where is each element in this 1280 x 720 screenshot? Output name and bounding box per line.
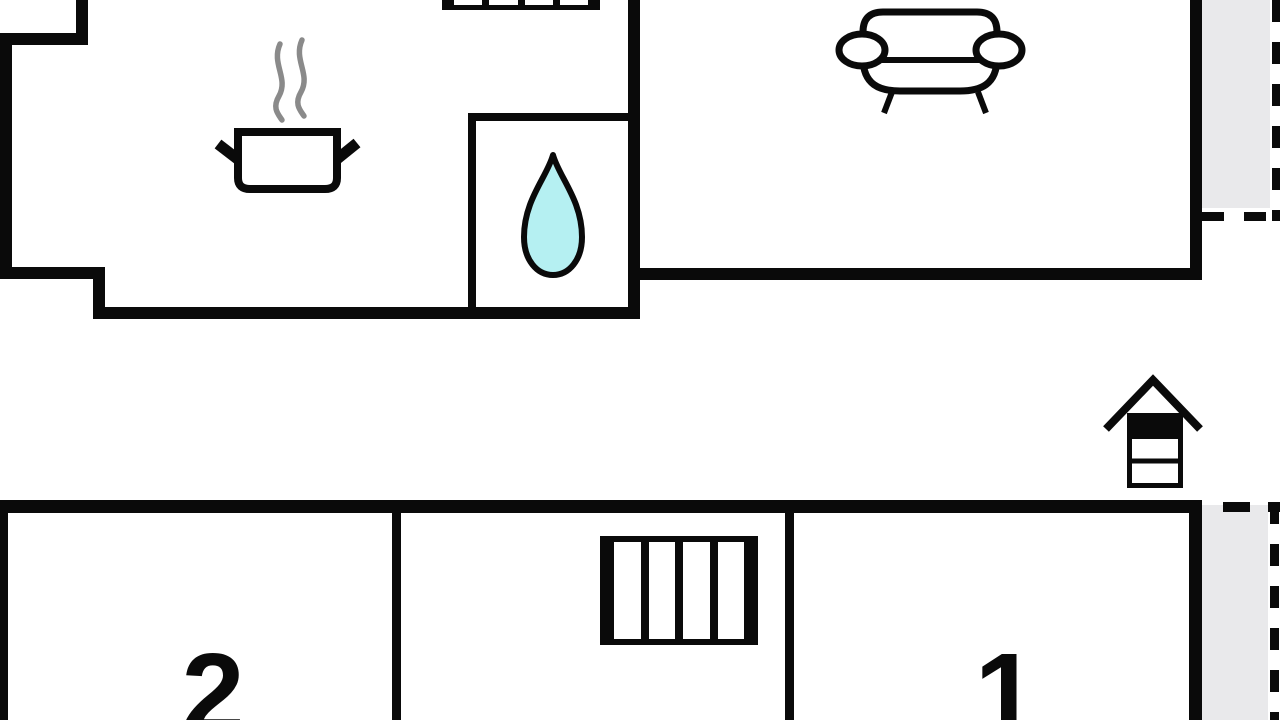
stair-tread bbox=[675, 542, 683, 639]
wall-lower-divider-left bbox=[392, 508, 401, 720]
terrace-lower-dashed-right bbox=[1270, 502, 1279, 720]
wall-lower-divider-right bbox=[785, 508, 794, 720]
room-2-label: 2 bbox=[182, 637, 245, 720]
wall-living-bottom bbox=[628, 268, 1202, 280]
wall-upper-left bbox=[0, 33, 12, 279]
stair-tread bbox=[710, 542, 718, 639]
water-drop-icon bbox=[516, 150, 592, 282]
steam-icon bbox=[276, 44, 282, 120]
wall-bathroom-top bbox=[468, 113, 628, 121]
terrace-upper bbox=[1202, 0, 1270, 208]
stair-tread bbox=[447, 0, 454, 5]
terrace-lower-dashed-top bbox=[1205, 502, 1280, 512]
water-drop-shape bbox=[524, 155, 582, 275]
stair-tread bbox=[482, 0, 489, 5]
sofa-leg-left bbox=[884, 92, 892, 113]
terrace-upper-dashed-right bbox=[1272, 0, 1280, 221]
bathroom-area bbox=[516, 150, 592, 282]
stair-tread bbox=[588, 0, 595, 5]
kitchen-area bbox=[210, 32, 370, 202]
steam-icon bbox=[298, 40, 304, 116]
pot-body bbox=[238, 132, 337, 189]
wall-living-right bbox=[1190, 0, 1202, 280]
wall-lower-left bbox=[0, 500, 8, 720]
stair-tread bbox=[518, 0, 525, 5]
wall-lower-top bbox=[0, 500, 1202, 513]
stair-tread bbox=[553, 0, 560, 5]
cooking-pot-icon bbox=[210, 32, 370, 202]
exterior-feature bbox=[1100, 372, 1204, 494]
sofa-leg-right bbox=[978, 92, 986, 113]
stairs-icon bbox=[442, 0, 600, 10]
sofa-icon bbox=[830, 0, 1030, 120]
terrace-upper-dashed-bottom bbox=[1202, 212, 1270, 221]
wall-kitchen-bottom bbox=[93, 307, 640, 319]
sofa-armrest-right bbox=[976, 34, 1022, 66]
stair-tread bbox=[641, 542, 649, 639]
terrace-lower bbox=[1202, 505, 1268, 720]
wall-kitchen-bottom-left bbox=[0, 267, 105, 279]
wall-lower-right bbox=[1189, 500, 1202, 720]
floor-plan: 2 1 bbox=[0, 0, 1280, 720]
wall-top-left-notch-horizontal bbox=[0, 33, 88, 45]
stair-tread bbox=[606, 542, 614, 639]
stairs-icon bbox=[600, 536, 758, 645]
wall-bathroom-left bbox=[468, 113, 476, 311]
stair-tread bbox=[744, 542, 752, 639]
room-1-label: 1 bbox=[975, 637, 1038, 720]
sofa-armrest-left bbox=[839, 34, 885, 66]
wood-stove-icon bbox=[1100, 372, 1204, 494]
living-room-area bbox=[830, 0, 1030, 120]
